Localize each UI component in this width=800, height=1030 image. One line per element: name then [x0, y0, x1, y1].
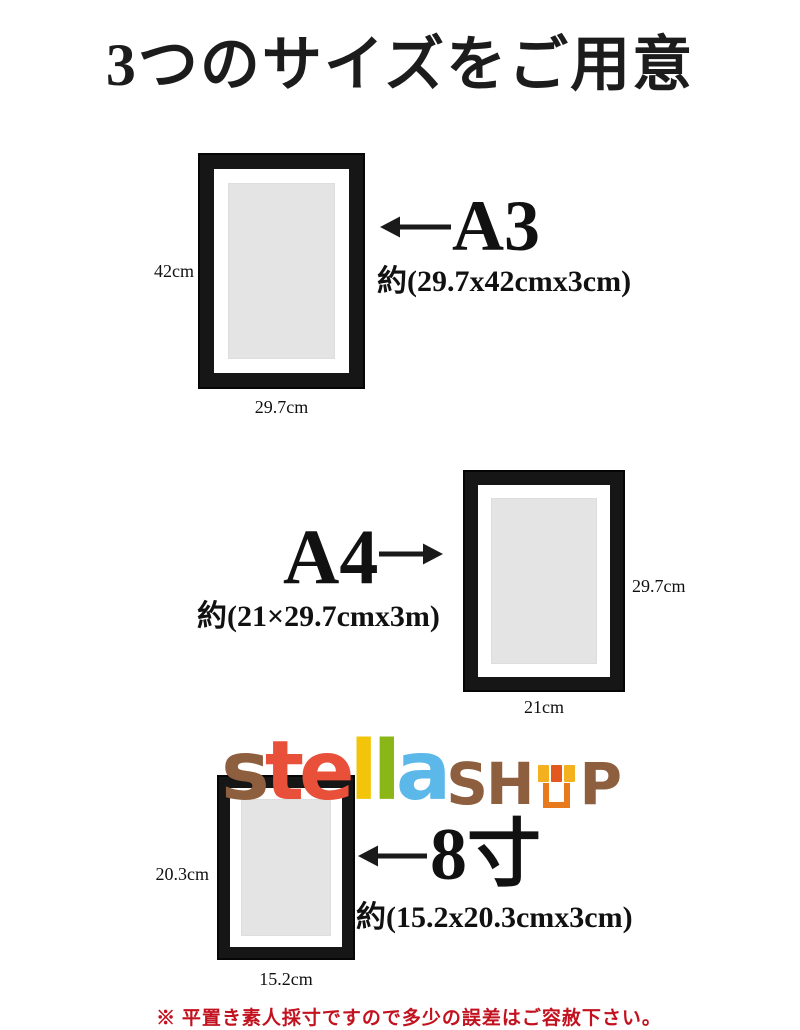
- stella-shop-logo: s t e l l a S H P: [221, 724, 620, 812]
- hassun-height-label: 20.3cm: [156, 864, 210, 885]
- hassun-size-name: 8寸: [430, 818, 541, 892]
- a3-size-name: A3: [452, 190, 540, 262]
- size-guide-image: 3つのサイズをご用意 42cm 29.7cm A3 約(29.7x42cmx3c…: [0, 0, 800, 1030]
- logo-letter-a: a: [396, 733, 451, 812]
- logo-letter-H: H: [486, 758, 535, 812]
- store-front-shape: [543, 783, 570, 808]
- left-arrow-icon: [357, 842, 428, 870]
- left-arrow-icon: [379, 213, 452, 241]
- a3-approx-dimensions: 約(29.7x42cmx3cm): [377, 265, 631, 298]
- logo-letter-e: e: [299, 733, 355, 812]
- a4-width-label: 21cm: [463, 697, 625, 718]
- a3-width-label: 29.7cm: [198, 397, 365, 418]
- a3-height-label: 42cm: [154, 261, 194, 282]
- frame-mat-a3: [214, 169, 349, 373]
- page-title: 3つのサイズをご用意: [0, 16, 800, 103]
- a4-size-name: A4: [283, 518, 378, 596]
- photo-frame-a3: [198, 153, 365, 389]
- logo-letter-P: P: [580, 758, 623, 812]
- awning: [538, 765, 575, 782]
- frame-opening-a4: [491, 498, 597, 664]
- a4-approx-dimensions: 約(21×29.7cmx3m): [197, 600, 440, 633]
- logo-letter-s: s: [221, 733, 270, 812]
- measurement-footnote: ※ 平置き素人採寸ですので多少の誤差はご容赦下さい。: [0, 1003, 800, 1030]
- right-arrow-icon: [378, 540, 444, 568]
- storefront-icon: [537, 765, 577, 809]
- frame-opening-a3: [228, 183, 335, 359]
- frame-opening-hassun: [241, 799, 331, 936]
- a4-height-label: 29.7cm: [632, 576, 686, 597]
- photo-frame-a4: [463, 470, 625, 692]
- hassun-width-label: 15.2cm: [217, 969, 355, 990]
- logo-letter-S: S: [446, 758, 488, 812]
- hassun-approx-dimensions: 約(15.2x20.3cmx3cm): [356, 901, 633, 934]
- frame-mat-a4: [478, 485, 610, 677]
